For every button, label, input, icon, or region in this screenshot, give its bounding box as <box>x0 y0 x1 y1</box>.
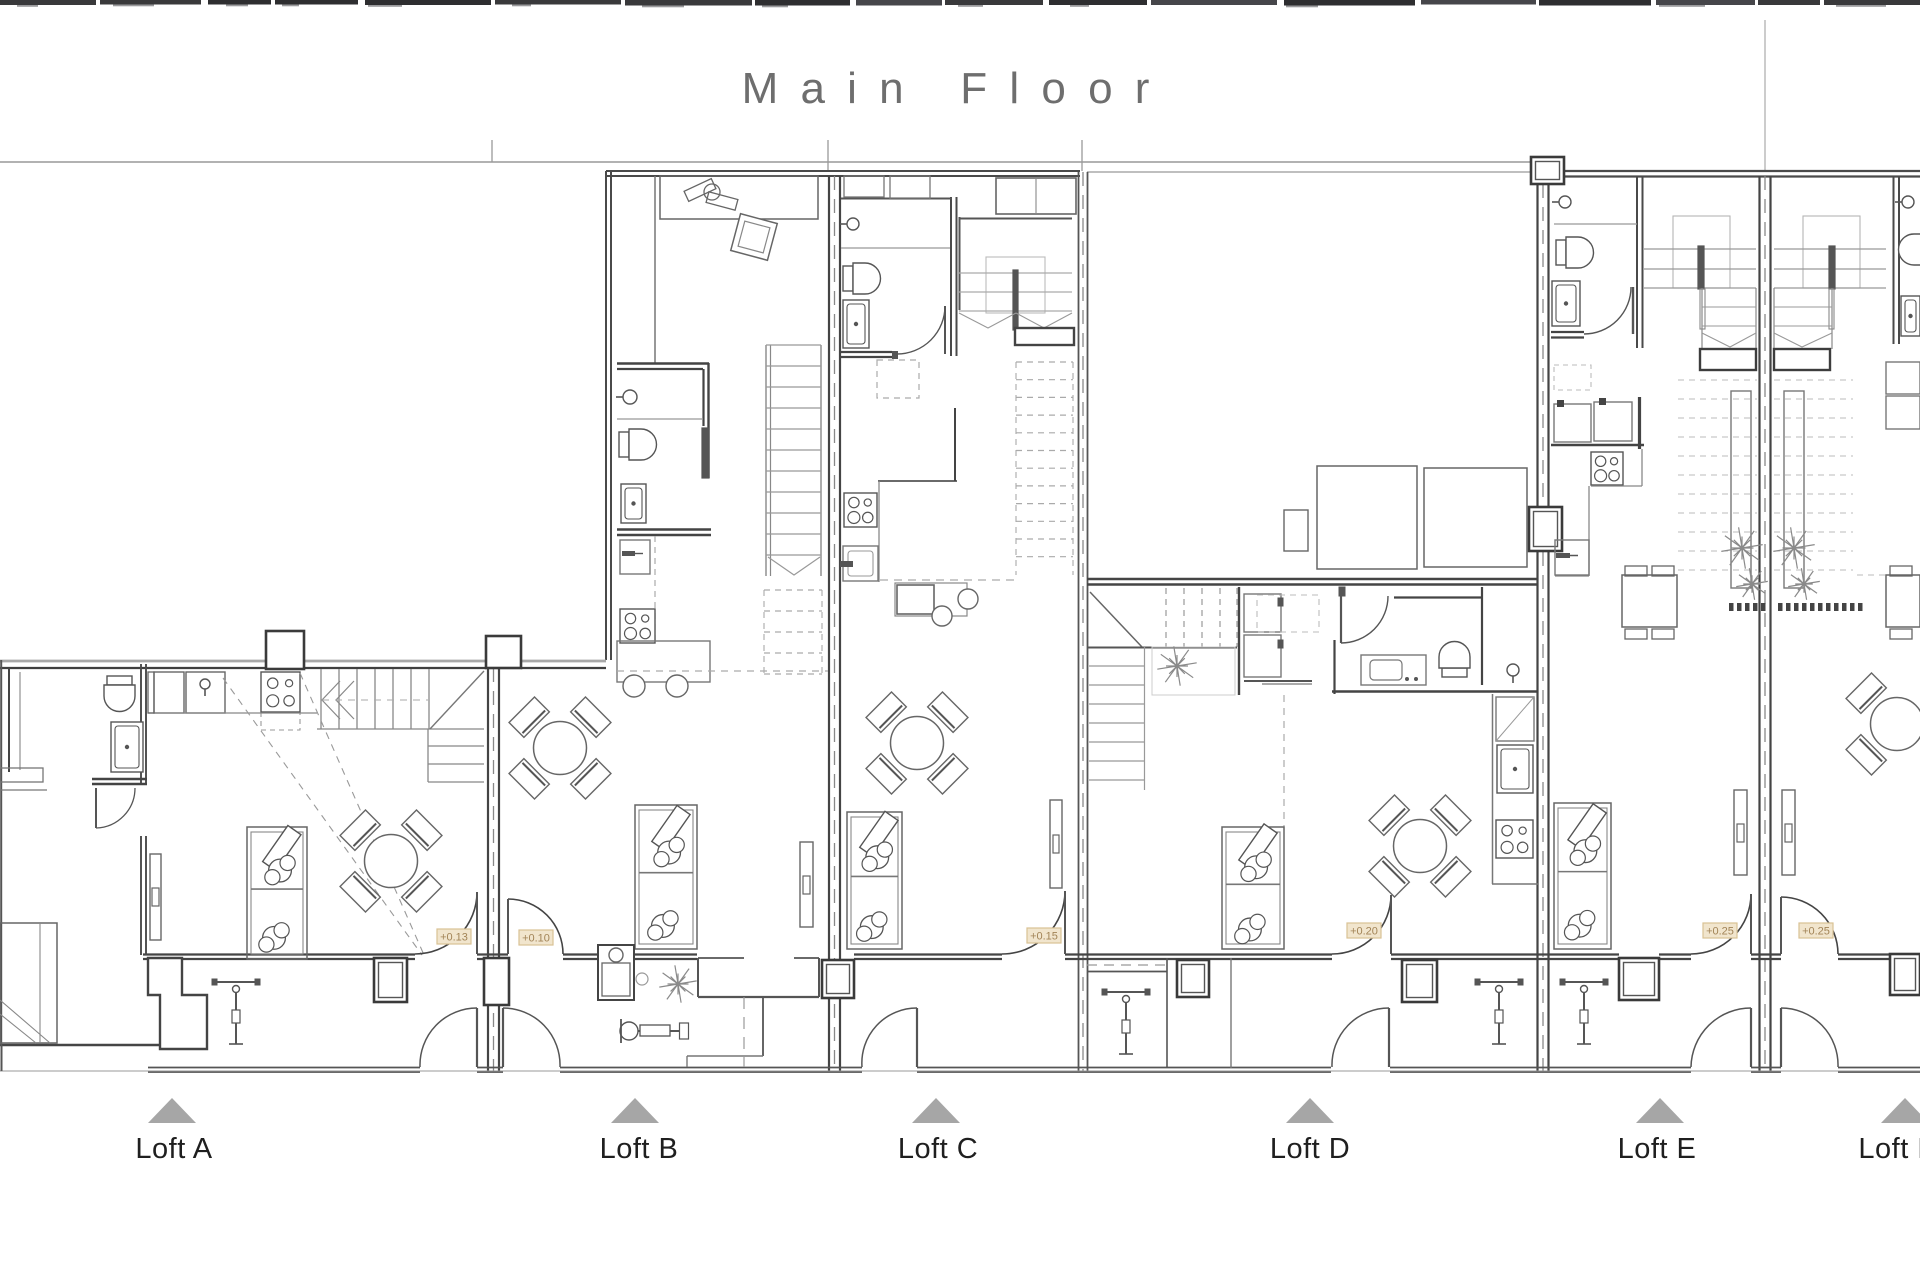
svg-text:M a i n F l o o r: M a i n F l o o r <box>742 64 1155 113</box>
svg-text:Loft B: Loft B <box>600 1133 679 1165</box>
svg-text:+0.10: +0.10 <box>522 933 550 945</box>
svg-text:+0.25: +0.25 <box>1706 926 1734 938</box>
svg-text:Loft C: Loft C <box>898 1133 978 1165</box>
svg-text:Loft D: Loft D <box>1270 1133 1350 1165</box>
svg-text:+0.25: +0.25 <box>1802 926 1830 938</box>
svg-text:Loft A: Loft A <box>135 1133 212 1165</box>
svg-text:Loft E: Loft E <box>1618 1133 1697 1165</box>
svg-text:+0.15: +0.15 <box>1030 931 1058 943</box>
svg-text:Loft F: Loft F <box>1858 1133 1920 1165</box>
svg-text:+0.13: +0.13 <box>440 932 468 944</box>
svg-text:+0.20: +0.20 <box>1350 926 1378 938</box>
